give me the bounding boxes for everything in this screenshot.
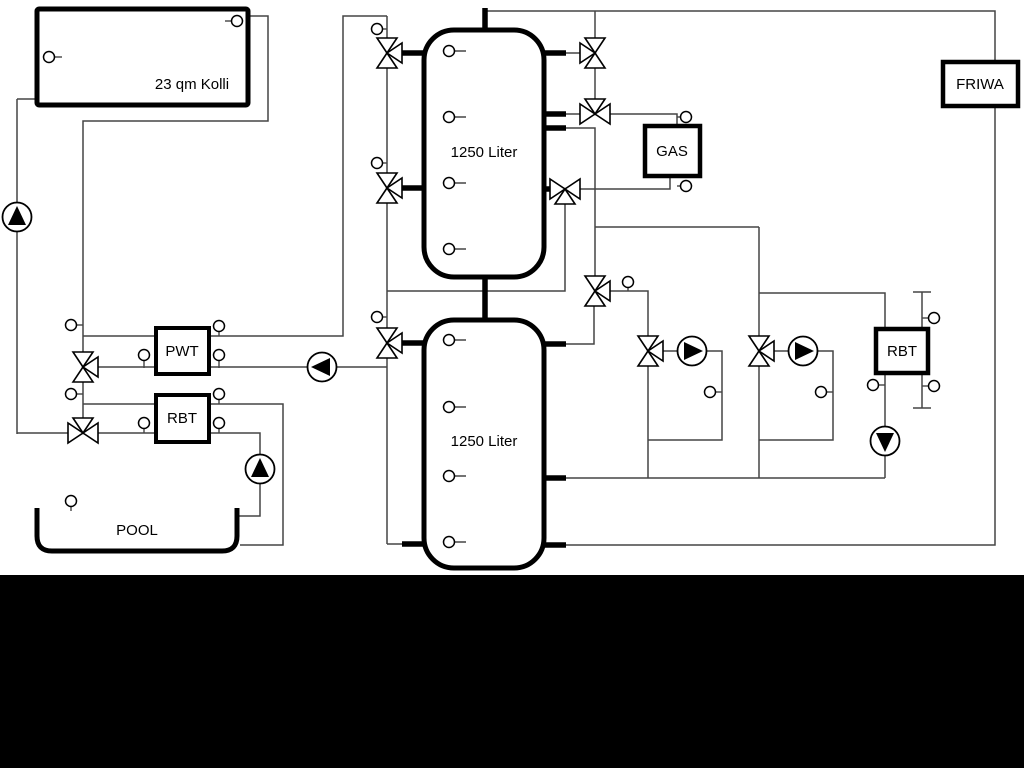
pipe xyxy=(485,11,995,545)
pipe xyxy=(578,177,670,189)
sensor-bulb xyxy=(444,46,455,57)
pipe xyxy=(566,305,594,344)
sensor-bulb xyxy=(139,418,150,429)
temperature-sensor-icon xyxy=(372,24,388,35)
sensor-bulb xyxy=(214,321,225,332)
sensor-bulb xyxy=(214,350,225,361)
gas-boiler-label: GAS xyxy=(656,143,688,160)
valve-gas-return-icon xyxy=(550,179,580,204)
valve-heating-circuit-2-icon xyxy=(749,336,774,366)
rbt-right-pump-icon xyxy=(871,427,900,456)
valve-tank1-right-top-icon xyxy=(580,38,605,68)
temperature-sensor-icon xyxy=(66,320,84,331)
sensor-bulb xyxy=(66,389,77,400)
sensor-bulb xyxy=(681,181,692,192)
heating-circuit-2-pump-icon xyxy=(789,337,818,366)
sensor-bulb xyxy=(66,320,77,331)
friwa-label: FRIWA xyxy=(956,76,1004,93)
valve-tank1-left-bottom-icon xyxy=(377,173,402,203)
temperature-sensor-icon xyxy=(66,496,77,512)
sensor-bulb xyxy=(44,52,55,63)
buffer-charge-pump-icon xyxy=(308,353,337,382)
sensor-bulb xyxy=(444,112,455,123)
rbt-left-label: RBT xyxy=(167,410,197,427)
pwt-heat-exchanger: PWT xyxy=(156,328,209,374)
gas-boiler: GAS xyxy=(645,126,700,176)
sensor-bulb xyxy=(444,244,455,255)
temperature-sensor-icon xyxy=(677,181,692,192)
pipe xyxy=(544,128,595,291)
buffer-tank-2-label: 1250 Liter xyxy=(451,433,518,450)
valve-pool-mixing-icon xyxy=(68,418,98,443)
temperature-sensor-icon xyxy=(214,321,225,337)
sensor-bulb xyxy=(372,24,383,35)
solar-pump-icon xyxy=(3,203,32,232)
temperature-sensor-icon xyxy=(214,418,225,434)
valve-tank2-left-icon xyxy=(377,328,402,358)
sensor-bulb xyxy=(444,402,455,413)
pool-pump-icon xyxy=(246,455,275,484)
sensor-bulb xyxy=(705,387,716,398)
sensor-bulb xyxy=(232,16,243,27)
sensor-bulb xyxy=(139,350,150,361)
rbt-left-heat-exchanger: RBT xyxy=(156,395,209,442)
sensor-bulb xyxy=(444,335,455,346)
sensor-bulb xyxy=(929,313,940,324)
temperature-sensor-icon xyxy=(139,418,150,434)
valve-tank1-left-top-icon xyxy=(377,38,402,68)
pool: POOL xyxy=(37,508,237,551)
temperature-sensor-icon xyxy=(623,277,634,292)
valve-distribution-icon xyxy=(585,276,610,306)
temperature-sensor-icon xyxy=(139,350,150,369)
sensor-bulb xyxy=(214,418,225,429)
temperature-sensor-icon xyxy=(214,350,225,369)
heating-circuit-1-pump-icon xyxy=(678,337,707,366)
temperature-sensor-icon xyxy=(868,380,886,391)
buffer-tank-1: 1250 Liter xyxy=(424,30,544,277)
temperature-sensor-icon xyxy=(214,389,225,405)
hydraulic-schematic: 23 qm Kolli 1250 Liter 1250 Liter PWT RB… xyxy=(0,0,1024,768)
temperature-sensor-icon xyxy=(705,387,723,398)
valve-heating-circuit-1-icon xyxy=(638,336,663,366)
sensor-bulb xyxy=(372,158,383,169)
sensor-bulb xyxy=(816,387,827,398)
pool-label: POOL xyxy=(116,522,158,539)
buffer-tank-1-label: 1250 Liter xyxy=(451,144,518,161)
buffer-tank-2: 1250 Liter xyxy=(424,320,544,568)
sensor-bulb xyxy=(214,389,225,400)
valve-pwt-mixing-icon xyxy=(73,352,98,382)
solar-collector: 23 qm Kolli xyxy=(37,9,248,105)
temperature-sensor-icon xyxy=(816,387,834,398)
solar-collector-label: 23 qm Kolli xyxy=(155,76,229,93)
temperature-sensor-icon xyxy=(922,313,940,324)
temperature-sensor-icon xyxy=(372,158,388,169)
sensor-bulb xyxy=(868,380,879,391)
sensor-bulb xyxy=(66,496,77,507)
friwa-station: FRIWA xyxy=(943,62,1018,106)
temperature-sensor-icon xyxy=(677,112,692,123)
sensor-bulb xyxy=(929,381,940,392)
valve-gas-flow-icon xyxy=(580,99,610,124)
pwt-label: PWT xyxy=(165,343,198,360)
temperature-sensor-icon xyxy=(372,312,388,323)
sensor-bulb xyxy=(681,112,692,123)
rbt-right-label: RBT xyxy=(887,343,917,360)
temperature-sensor-icon xyxy=(66,389,84,400)
sensor-bulb xyxy=(444,537,455,548)
footer-black-band xyxy=(0,575,1024,768)
rbt-right-heat-exchanger: RBT xyxy=(876,329,928,373)
sensor-bulb xyxy=(623,277,634,288)
temperature-sensor-icon xyxy=(922,381,940,392)
sensor-bulb xyxy=(444,178,455,189)
pipe xyxy=(608,291,648,478)
sensor-bulb xyxy=(444,471,455,482)
pipe xyxy=(759,293,885,329)
sensor-bulb xyxy=(372,312,383,323)
